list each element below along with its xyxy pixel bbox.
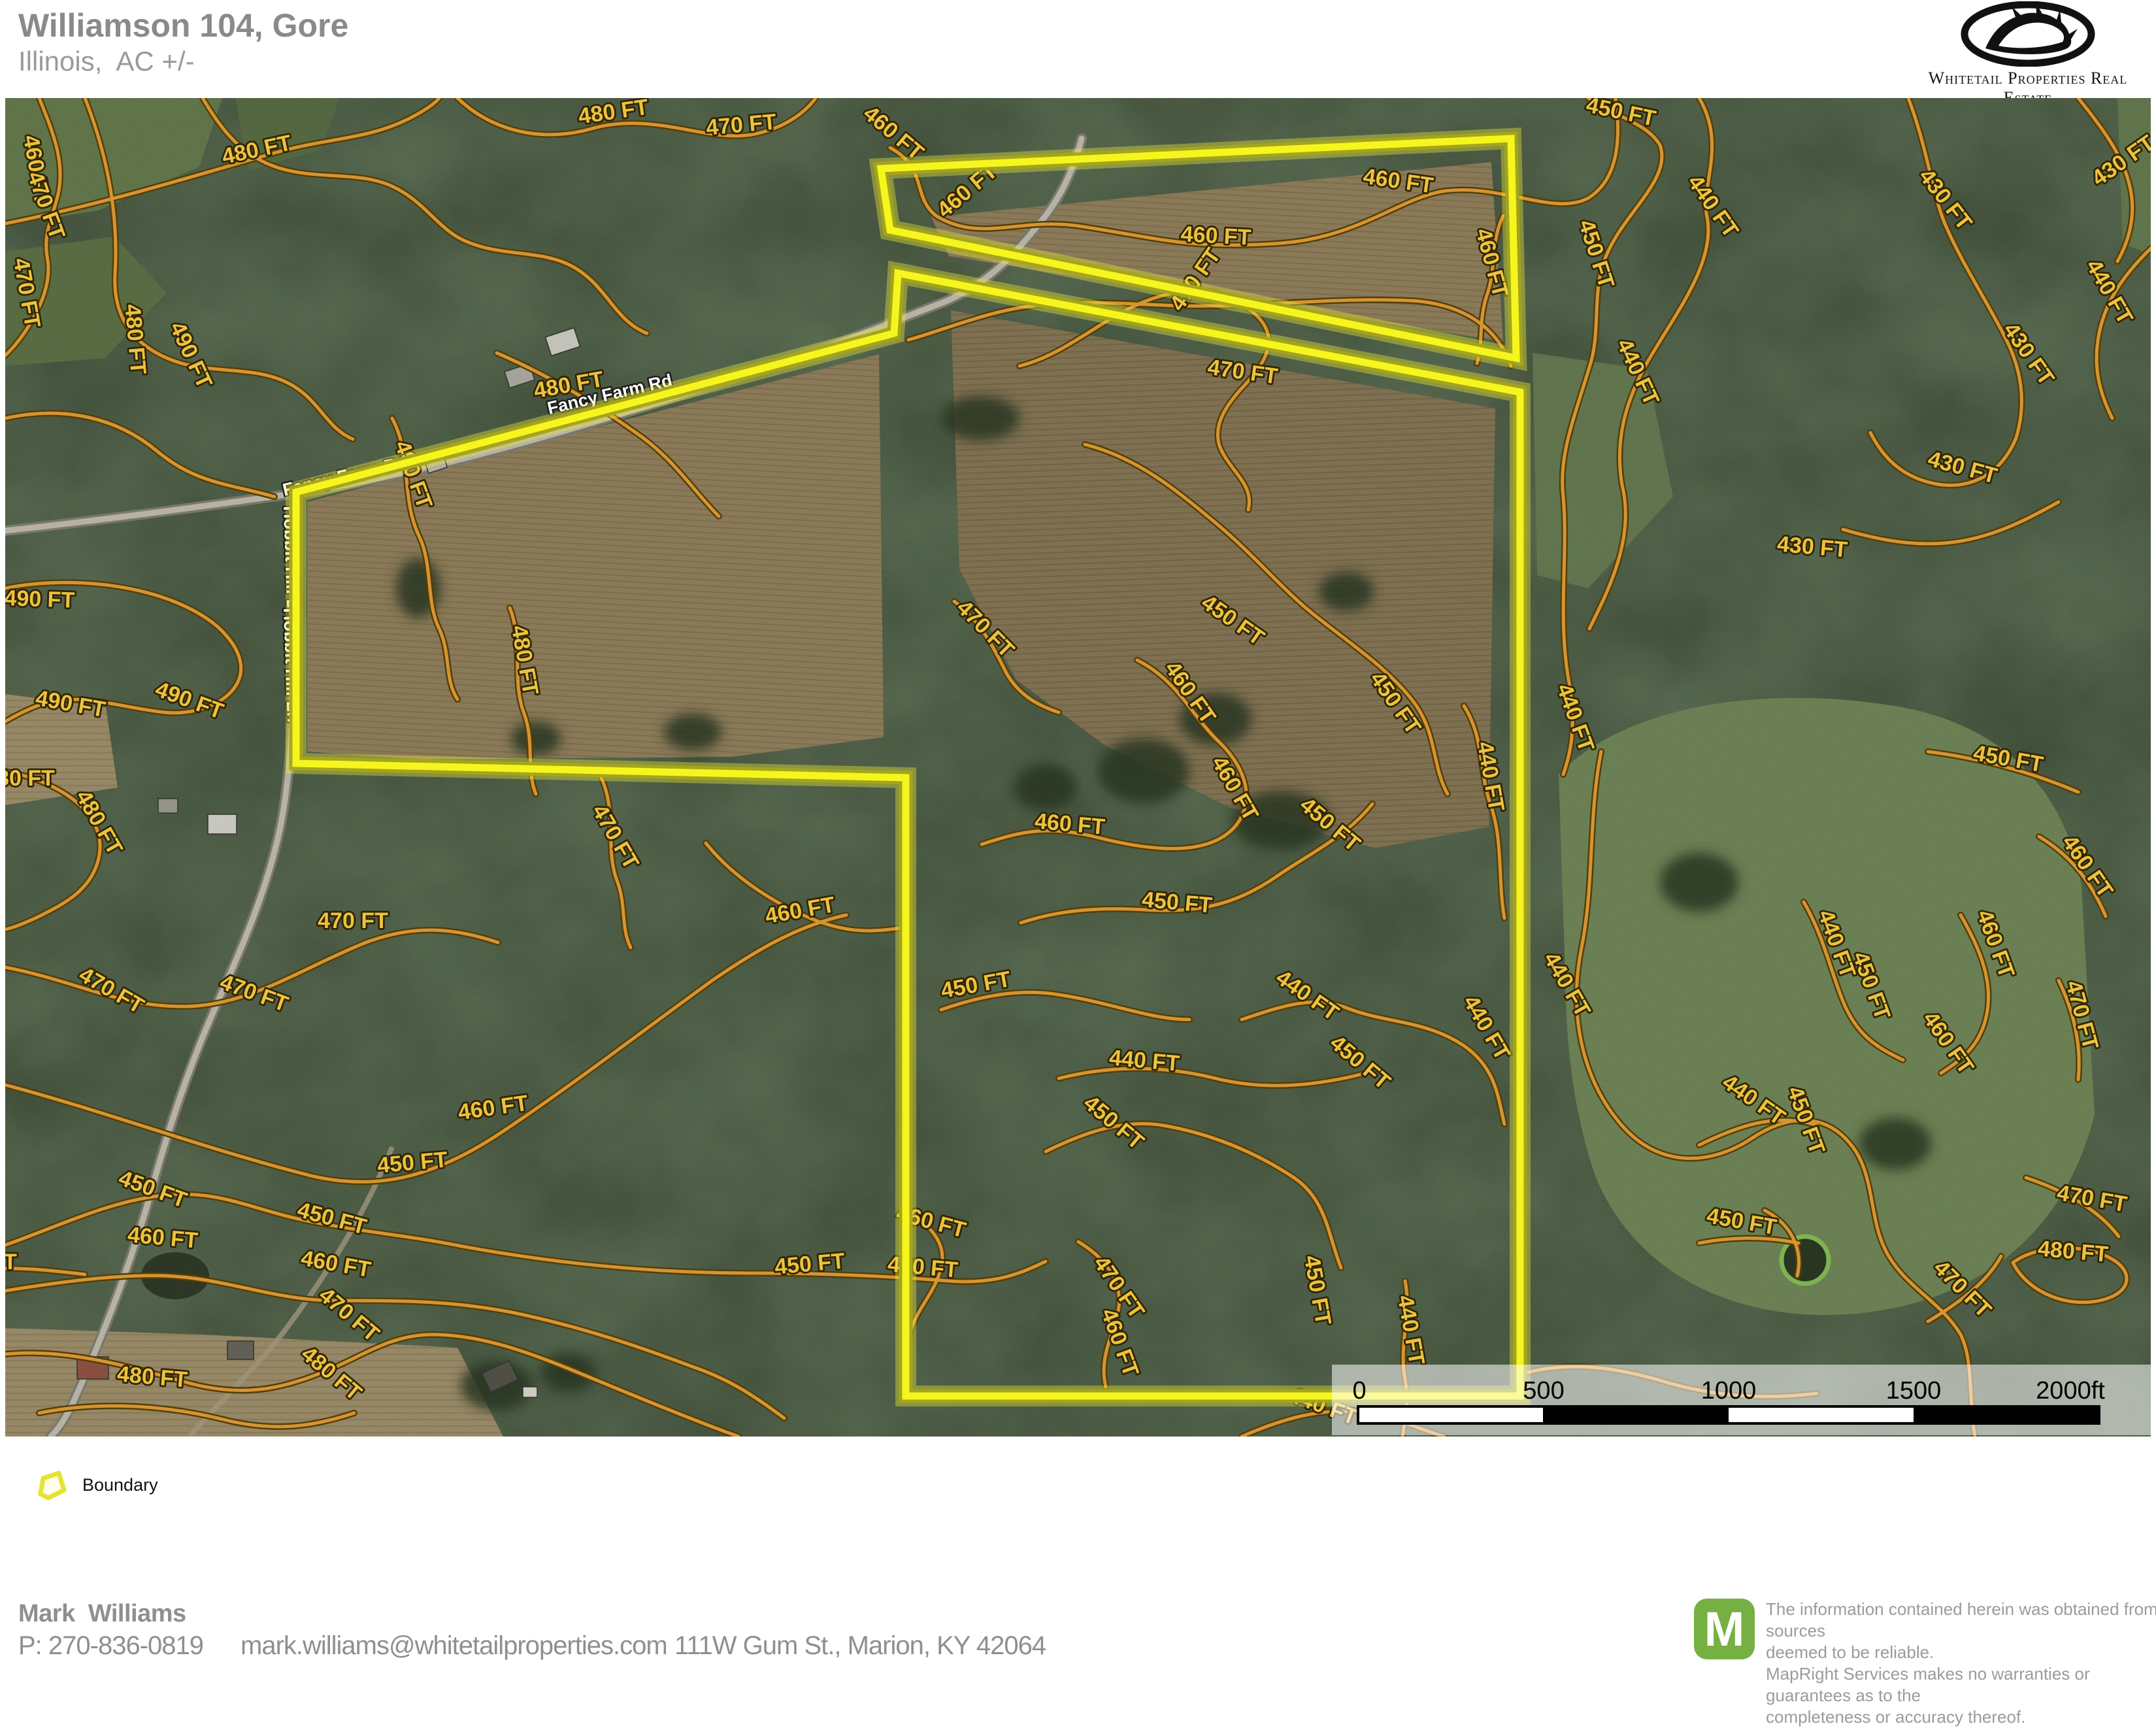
aerial-topo-map: 460 FT470 FT480 FT480 FT470 FT460 FT460 … — [5, 98, 2151, 1437]
scale-label: 0 — [1352, 1377, 1366, 1404]
legend-boundary-label: Boundary — [82, 1475, 158, 1495]
disclaimer-line: The information contained herein was obt… — [1766, 1599, 2156, 1642]
page-subtitle: Illinois, AC +/- — [18, 46, 195, 77]
page-title: Williamson 104, Gore — [18, 7, 348, 44]
boundary-legend-icon — [34, 1468, 68, 1502]
legend-boundary: Boundary — [34, 1468, 158, 1502]
antler-logo-icon — [1959, 1, 2097, 67]
disclaimer-line: completeness or accuracy thereof. — [1766, 1706, 2156, 1728]
contour-label: 460 FT — [1180, 222, 1252, 250]
contour-label: 480 FT — [5, 766, 55, 791]
mapright-m-icon: M — [1704, 1605, 1745, 1653]
disclaimer-line: deemed to be reliable. — [1766, 1642, 2156, 1663]
agent-address: 111W Gum St., Marion, KY 42064 — [674, 1631, 1046, 1661]
scale-label: 2000ft — [2036, 1377, 2105, 1404]
contour-label: 490 FT — [5, 586, 75, 613]
contour-label: 450 FT — [5, 1250, 17, 1274]
scale-bar: 0500100015002000ft — [1332, 1365, 2151, 1435]
scale-label: 1000 — [1701, 1377, 1757, 1404]
disclaimer-text: The information contained herein was obt… — [1766, 1599, 2156, 1728]
map-canvas: 460 FT470 FT480 FT480 FT470 FT460 FT460 … — [5, 98, 2151, 1437]
disclaimer-line: MapRight Services makes no warranties or… — [1766, 1663, 2156, 1706]
agent-phone: P: 270-836-0819 — [18, 1631, 203, 1661]
contour-label: 470 FT — [318, 908, 388, 933]
agent-email[interactable]: mark.williams@whitetailproperties.com — [240, 1631, 667, 1661]
agent-name: Mark Williams — [18, 1600, 186, 1628]
scale-label: 500 — [1523, 1377, 1564, 1404]
mapright-logo: M — [1694, 1599, 1755, 1659]
scale-label: 1500 — [1886, 1377, 1942, 1404]
contact-row: P: 270-836-0819 mark.williams@whitetailp… — [0, 1631, 1111, 1664]
